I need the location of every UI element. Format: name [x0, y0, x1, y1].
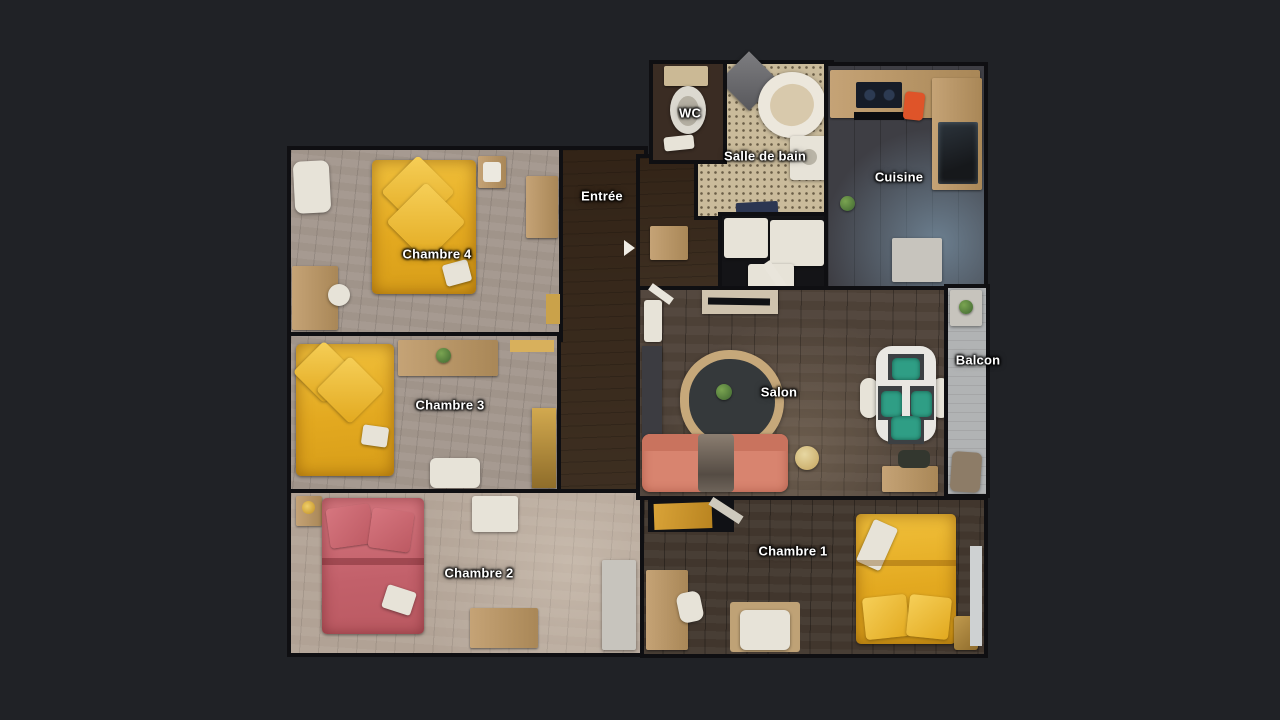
room-label-chambre-1: Chambre 1 — [759, 545, 828, 558]
window-sill — [970, 546, 982, 646]
pillow — [862, 594, 910, 640]
bench — [430, 458, 480, 488]
room-label-salon: Salon — [761, 386, 797, 399]
nightstand — [478, 156, 506, 188]
laundry-basket — [472, 496, 518, 532]
fire-extinguisher — [903, 91, 926, 121]
cabinet — [770, 220, 824, 266]
wardrobe-chambre-2 — [602, 560, 636, 650]
room-chambre-3[interactable] — [291, 336, 557, 497]
tv-console — [702, 290, 778, 314]
book-on-bed — [442, 259, 473, 287]
wc-paper-stack — [663, 134, 694, 151]
room-chambre-1[interactable] — [644, 500, 984, 654]
blanket-fold — [322, 558, 424, 565]
door-marker — [624, 240, 635, 256]
pillow — [367, 507, 414, 552]
chair-teal — [892, 358, 920, 380]
wardrobe-door-yellow — [654, 502, 713, 530]
desk-chambre-2 — [470, 608, 538, 648]
door-mat — [546, 294, 560, 324]
room-label-chambre-4: Chambre 4 — [403, 248, 472, 261]
chair-teal — [911, 391, 932, 417]
balcony-planter — [950, 290, 982, 326]
bed-chambre-1 — [856, 514, 956, 644]
bathroom-cabinet-zone — [722, 216, 830, 292]
nightstand — [296, 496, 322, 526]
kitchen-plant — [840, 196, 855, 211]
room-balcon[interactable] — [948, 288, 986, 494]
wardrobe-chambre-4 — [526, 176, 558, 238]
bed-chambre-3 — [296, 344, 394, 476]
kitchen-counter-right — [932, 78, 982, 190]
room-chambre-4[interactable] — [291, 150, 559, 338]
room-label-chambre-3: Chambre 3 — [416, 399, 485, 412]
rug-plant — [716, 384, 732, 400]
bathtub-basin — [765, 79, 818, 131]
room-label-balcon: Balcon — [956, 354, 1001, 367]
balcony-chair — [950, 451, 983, 493]
bath-mat — [736, 201, 779, 217]
wardrobe-zone — [648, 500, 734, 532]
room-label-entree: Entrée — [581, 190, 623, 203]
shelf — [510, 340, 554, 352]
desk-chair — [328, 284, 350, 306]
cabinet — [724, 218, 768, 258]
pillow — [906, 594, 952, 640]
lamp — [302, 501, 315, 514]
chair-teal — [881, 391, 902, 417]
desk-chambre-3 — [398, 340, 498, 376]
nightstand-cloth — [483, 162, 501, 182]
bookshelf — [642, 346, 662, 438]
desk-chair-dark — [898, 450, 930, 468]
fridge — [938, 122, 978, 184]
floorplan-canvas[interactable]: WC Salle de bain Cuisine Entrée Chambre … — [0, 0, 1280, 720]
entree-console — [650, 226, 688, 260]
cooktop — [856, 82, 902, 108]
bed-chambre-4 — [372, 160, 476, 294]
book-on-bed — [361, 424, 390, 447]
desk-salon — [882, 466, 938, 492]
kitchen-cabinet-bottom — [892, 238, 942, 282]
chaise-longue — [293, 160, 332, 214]
fur-throw — [698, 434, 734, 492]
book-on-bed — [381, 584, 417, 616]
chair-teal — [891, 416, 921, 440]
room-label-cuisine: Cuisine — [875, 171, 923, 184]
bench — [740, 610, 790, 650]
bathtub — [758, 72, 826, 138]
bed-chambre-2 — [322, 498, 424, 634]
tv — [708, 297, 770, 305]
room-label-chambre-2: Chambre 2 — [445, 567, 514, 580]
dining-table — [876, 346, 936, 442]
planter-plant — [959, 300, 973, 314]
oven-front — [854, 112, 904, 120]
open-door — [532, 408, 556, 488]
pouf — [795, 446, 819, 470]
room-label-salle-de-bain: Salle de bain — [724, 150, 806, 163]
blanket-fold — [856, 560, 956, 566]
side-table — [644, 300, 662, 342]
wardrobe-shelf — [708, 497, 743, 524]
room-label-wc: WC — [679, 107, 701, 120]
wc-sink — [664, 66, 708, 86]
desk-plant — [436, 348, 451, 363]
sofa — [642, 434, 788, 492]
